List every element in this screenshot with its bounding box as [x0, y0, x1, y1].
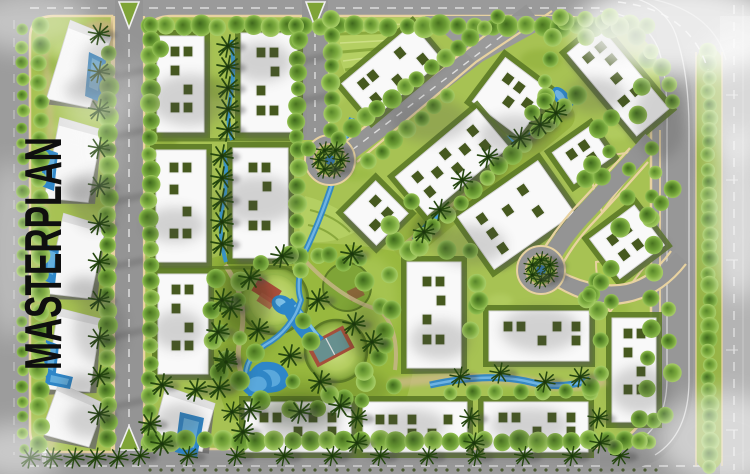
svg-text:MASTERPLAN: MASTERPLAN — [15, 137, 73, 370]
